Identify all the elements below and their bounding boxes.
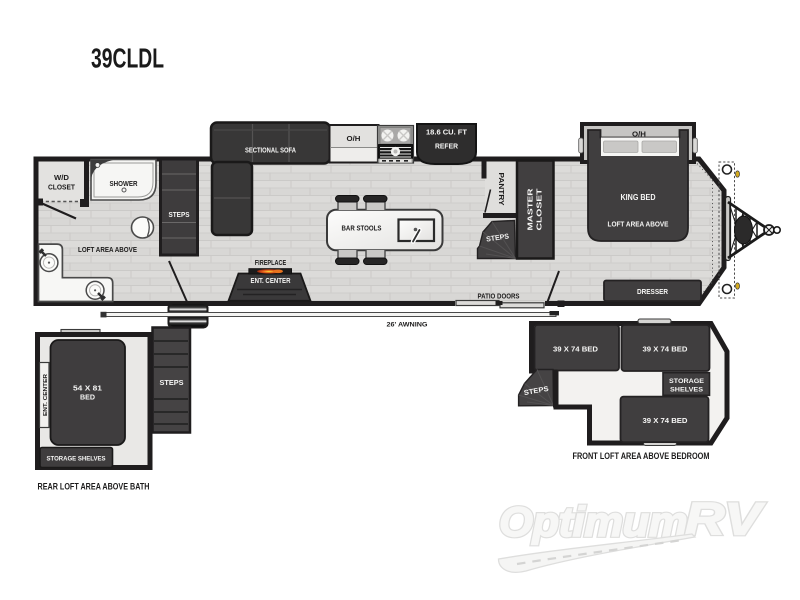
svg-text:BAR STOOLS: BAR STOOLS [342, 224, 382, 233]
svg-text:SECTIONAL SOFA: SECTIONAL SOFA [245, 146, 296, 155]
svg-text:54 X 81: 54 X 81 [73, 386, 102, 393]
svg-text:O/H: O/H [347, 134, 361, 143]
svg-text:39 X 74 BED: 39 X 74 BED [643, 416, 689, 425]
svg-text:39CLDL: 39CLDL [91, 43, 164, 74]
svg-text:REFER: REFER [435, 144, 458, 151]
svg-text:STEPS: STEPS [160, 380, 184, 387]
svg-text:FRONT LOFT AREA ABOVE BEDROOM: FRONT LOFT AREA ABOVE BEDROOM [573, 451, 710, 462]
svg-text:PATIO DOORS: PATIO DOORS [478, 292, 520, 301]
svg-text:SHELVES: SHELVES [670, 387, 704, 394]
svg-text:STEPS: STEPS [169, 210, 190, 219]
svg-text:SHOWER: SHOWER [110, 179, 139, 188]
svg-text:DRESSER: DRESSER [637, 287, 669, 296]
svg-text:LOFT AREA ABOVE: LOFT AREA ABOVE [608, 220, 669, 229]
svg-text:REAR LOFT AREA ABOVE BATH: REAR LOFT AREA ABOVE BATH [38, 482, 150, 492]
svg-text:39 X 74 BED: 39 X 74 BED [553, 345, 599, 354]
svg-text:KING BED: KING BED [621, 193, 656, 202]
svg-text:LOFT AREA ABOVE: LOFT AREA ABOVE [78, 245, 137, 254]
svg-text:39 X 74 BED: 39 X 74 BED [643, 345, 689, 354]
svg-text:CLOSET: CLOSET [48, 183, 76, 192]
svg-text:CLOSET: CLOSET [535, 188, 544, 231]
svg-text:W/D: W/D [54, 173, 69, 182]
svg-text:STORAGE SHELVES: STORAGE SHELVES [47, 456, 106, 463]
svg-text:FIREPLACE: FIREPLACE [255, 258, 287, 267]
svg-text:STORAGE: STORAGE [669, 378, 705, 385]
svg-text:MASTER: MASTER [526, 187, 535, 230]
svg-text:BED: BED [80, 395, 95, 402]
svg-text:ENT. CENTER: ENT. CENTER [43, 373, 49, 416]
svg-text:RV: RV [685, 494, 766, 545]
svg-text:18.6 CU. FT: 18.6 CU. FT [426, 130, 468, 137]
svg-text:ENT. CENTER: ENT. CENTER [251, 276, 292, 285]
svg-text:26' AWNING: 26' AWNING [387, 322, 428, 329]
svg-text:PANTRY: PANTRY [497, 173, 504, 206]
